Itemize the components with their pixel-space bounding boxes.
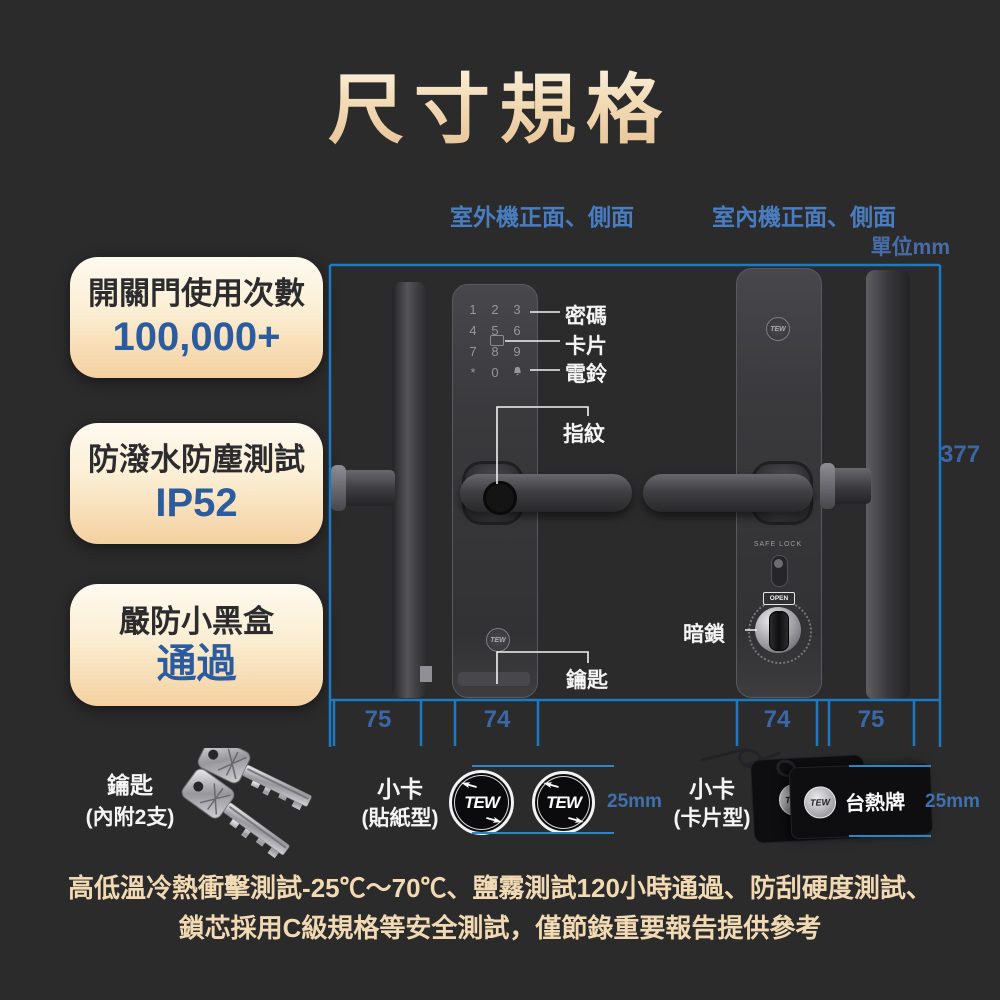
cards-title: 小卡 <box>662 770 762 804</box>
footnote-line-2: 鎖芯採用C級規格等安全測試，僅節錄重要報告提供參考 <box>0 908 1000 945</box>
keypad-key-star: * <box>470 365 475 380</box>
keypad-key-9: 9 <box>513 344 520 359</box>
spec-poster: 尺寸規格 室外機正面、側面 室內機正面、側面 單位mm 開關門使用次數 100,… <box>0 0 1000 1000</box>
tew-card-front: TEW 台熱牌 <box>789 763 933 840</box>
open-label: OPEN <box>763 592 795 605</box>
keypad-key-6: 6 <box>513 323 520 338</box>
keys-photo <box>178 748 343 863</box>
feature-box-ip52: 防潑水防塵測試 IP52 <box>70 423 323 544</box>
tew-card-front-logo: TEW <box>803 786 836 819</box>
keypad-key-7: 7 <box>469 344 476 359</box>
dim-outdoor-side-width: 75 <box>352 706 404 734</box>
keypad-key-3: 3 <box>513 302 520 317</box>
indoor-view-label: 室內機正面、側面 <box>712 198 896 232</box>
sticker-arrow-icon <box>460 780 477 790</box>
sticker-arrow-icon <box>567 815 584 825</box>
callout-card: 卡片 <box>565 330 607 360</box>
sticker-arrow-icon <box>542 780 559 790</box>
dim-outdoor-front-width: 74 <box>471 706 523 734</box>
tew-sticker-2-logo: TEW <box>546 793 581 813</box>
callout-password: 密碼 <box>565 300 607 330</box>
feature-box-cycles-value: 100,000+ <box>113 314 281 360</box>
outdoor-view-label: 室外機正面、側面 <box>450 198 634 232</box>
safe-lock-toggle-knob <box>774 559 783 568</box>
keypad-key-4: 4 <box>469 323 476 338</box>
feature-box-blackbox: 嚴防小黑盒 通過 <box>70 584 323 706</box>
callout-deadbolt: 暗鎖 <box>683 618 725 648</box>
keypad-key-8: 8 <box>491 344 498 359</box>
callout-key: 鑰匙 <box>566 664 608 694</box>
feature-box-cycles: 開關門使用次數 100,000+ <box>70 257 323 378</box>
fingerprint-sensor <box>483 481 517 515</box>
tew-sticker-1: TEW <box>449 770 514 835</box>
sticker-arrow-icon <box>485 815 502 825</box>
outdoor-latch-bolt <box>420 666 432 682</box>
cards-subtitle: (卡片型) <box>657 802 767 832</box>
sticker-size-label: 25mm <box>607 791 662 813</box>
deadbolt-knob-bar <box>769 611 789 651</box>
stickers-subtitle: (貼紙型) <box>345 802 455 832</box>
card-size-label: 25mm <box>925 791 980 813</box>
tew-sticker-1-logo: TEW <box>464 793 499 813</box>
feature-box-blackbox-title: 嚴防小黑盒 <box>119 603 274 642</box>
indoor-handle <box>643 474 813 512</box>
indoor-logo-badge: TEW <box>766 317 790 341</box>
feature-box-cycles-title: 開關門使用次數 <box>88 275 305 314</box>
feature-box-ip52-value: IP52 <box>155 480 237 526</box>
tew-sticker-2: TEW <box>532 771 595 834</box>
tew-card-front-brand: 台熱牌 <box>845 785 906 816</box>
keyhole-cover <box>458 672 530 686</box>
callout-doorbell: 電鈴 <box>565 358 607 388</box>
safe-lock-toggle <box>771 555 788 587</box>
safe-lock-label: SAFE LOCK <box>738 541 818 548</box>
feature-box-ip52-title: 防潑水防塵測試 <box>88 441 305 480</box>
dim-indoor-front-width: 74 <box>751 706 803 734</box>
outdoor-side-handle-cap <box>331 465 346 511</box>
outdoor-logo-badge: TEW <box>486 628 510 652</box>
unit-label: 單位mm <box>858 231 950 261</box>
feature-box-blackbox-value: 通過 <box>157 641 237 687</box>
keypad-key-0: 0 <box>491 365 498 380</box>
indoor-side-view <box>866 270 910 700</box>
doorbell-icon <box>512 365 523 380</box>
outdoor-side-view <box>392 282 426 698</box>
card-reader-icon <box>490 335 504 346</box>
dim-height: 377 <box>940 441 992 469</box>
indoor-side-handle-cap <box>820 463 835 509</box>
callout-fingerprint: 指紋 <box>563 418 605 448</box>
dim-indoor-side-width: 75 <box>845 706 897 734</box>
keys-title: 鑰匙 <box>85 766 175 800</box>
keypad-key-1: 1 <box>469 302 476 317</box>
footnote-line-1: 高低溫冷熱衝擊測試-25℃～70℃、鹽霧測試120小時通過、防刮硬度測試、 <box>0 868 1000 905</box>
page-title: 尺寸規格 <box>0 48 1000 158</box>
keypad-key-2: 2 <box>491 302 498 317</box>
stickers-title: 小卡 <box>350 770 450 804</box>
keys-subtitle: (內附2支) <box>70 801 190 831</box>
